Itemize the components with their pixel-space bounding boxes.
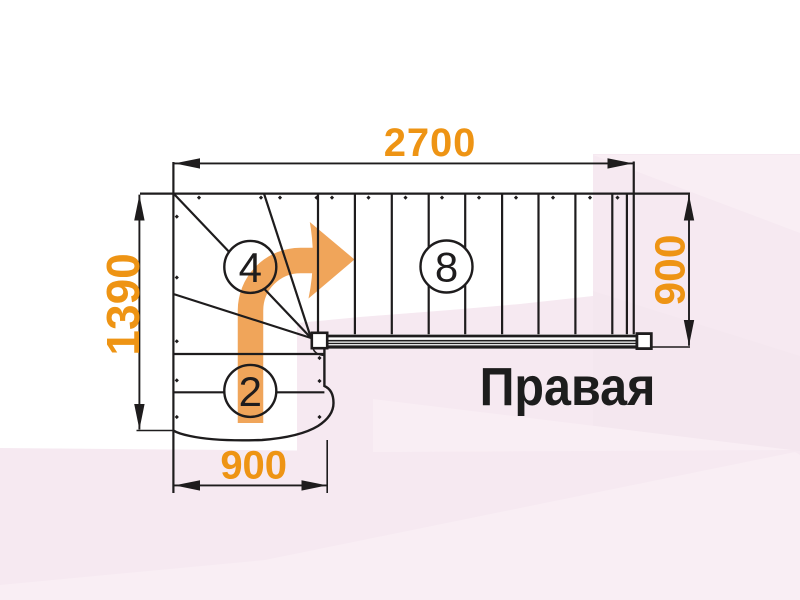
svg-text:900: 900 [648, 235, 695, 306]
svg-text:8: 8 [435, 244, 458, 291]
svg-text:2700: 2700 [384, 121, 477, 165]
svg-text:1390: 1390 [97, 253, 149, 355]
svg-text:Правая: Правая [480, 357, 656, 417]
svg-text:900: 900 [220, 444, 287, 488]
svg-text:4: 4 [239, 244, 262, 291]
svg-text:2: 2 [239, 368, 262, 415]
